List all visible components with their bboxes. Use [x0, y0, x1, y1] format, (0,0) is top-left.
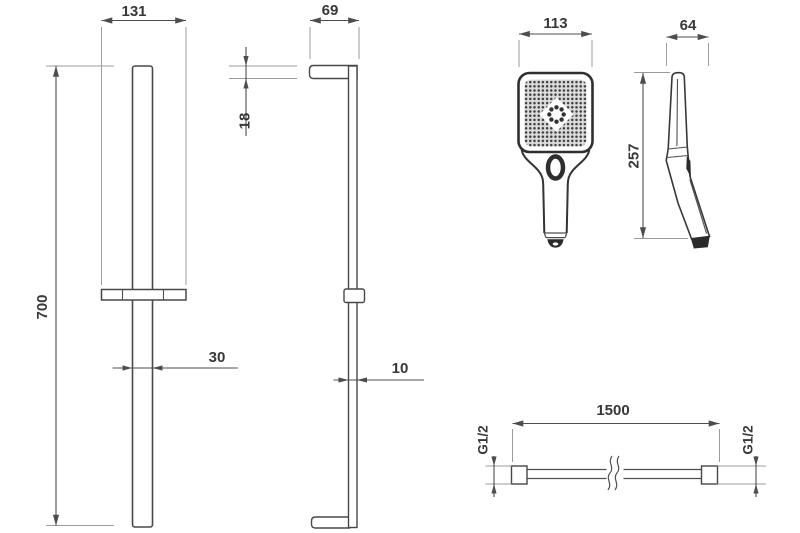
- dim-label-handshower-width: 113: [543, 15, 567, 32]
- dim-label-rail-profile-depth: 10: [392, 360, 409, 377]
- rail-side-view: [310, 66, 365, 529]
- hose-fitting-left: [512, 466, 528, 484]
- rail-front-slider-bracket: [102, 290, 187, 301]
- dim-rail-side-bracket-height: 18: [229, 47, 297, 136]
- technical-drawing-canvas: 131 700 30 69 18: [0, 0, 800, 533]
- dim-label-rail-height: 700: [34, 294, 51, 319]
- hose-break-symbol: [608, 456, 619, 490]
- dim-rail-side-depth: 69: [310, 2, 359, 59]
- rail-side-slider: [344, 289, 365, 303]
- rail-front-view: [102, 66, 187, 527]
- hose-view: [512, 456, 718, 490]
- dim-handshower-depth: 64: [667, 17, 709, 66]
- dim-label-hose-length: 1500: [596, 402, 629, 419]
- handshower-handle-right-edge: [567, 149, 590, 234]
- dim-label-rail-width: 131: [121, 3, 146, 20]
- dim-hose-thread-left: G1/2: [476, 425, 512, 497]
- dim-label-handshower-height: 257: [626, 143, 643, 168]
- dim-rail-front-profile-width: 30: [113, 349, 239, 371]
- dim-label-rail-depth: 69: [322, 2, 339, 19]
- dim-rail-side-profile-depth: 10: [334, 360, 425, 383]
- rail-side-foot: [312, 517, 350, 528]
- dim-label-thread-right: G1/2: [741, 425, 756, 454]
- dim-label-rail-profile-width: 30: [209, 349, 226, 366]
- hose-fitting-right: [702, 466, 718, 484]
- hose-tube: [527, 470, 702, 479]
- dim-label-thread-left: G1/2: [476, 425, 491, 454]
- handshower-front-view: [519, 73, 593, 248]
- dim-label-handshower-depth: 64: [680, 17, 697, 34]
- dim-hose-thread-right: G1/2: [718, 425, 767, 497]
- handshower-handle-left-edge: [522, 149, 545, 234]
- dim-label-bracket-height: 18: [237, 113, 254, 130]
- dim-handshower-width: 113: [519, 15, 592, 67]
- handshower-hanging-hole: [548, 157, 563, 179]
- handshower-side-view: [666, 73, 710, 249]
- dim-hose-length: 1500: [513, 402, 720, 462]
- technical-drawing-page: 131 700 30 69 18: [0, 0, 800, 533]
